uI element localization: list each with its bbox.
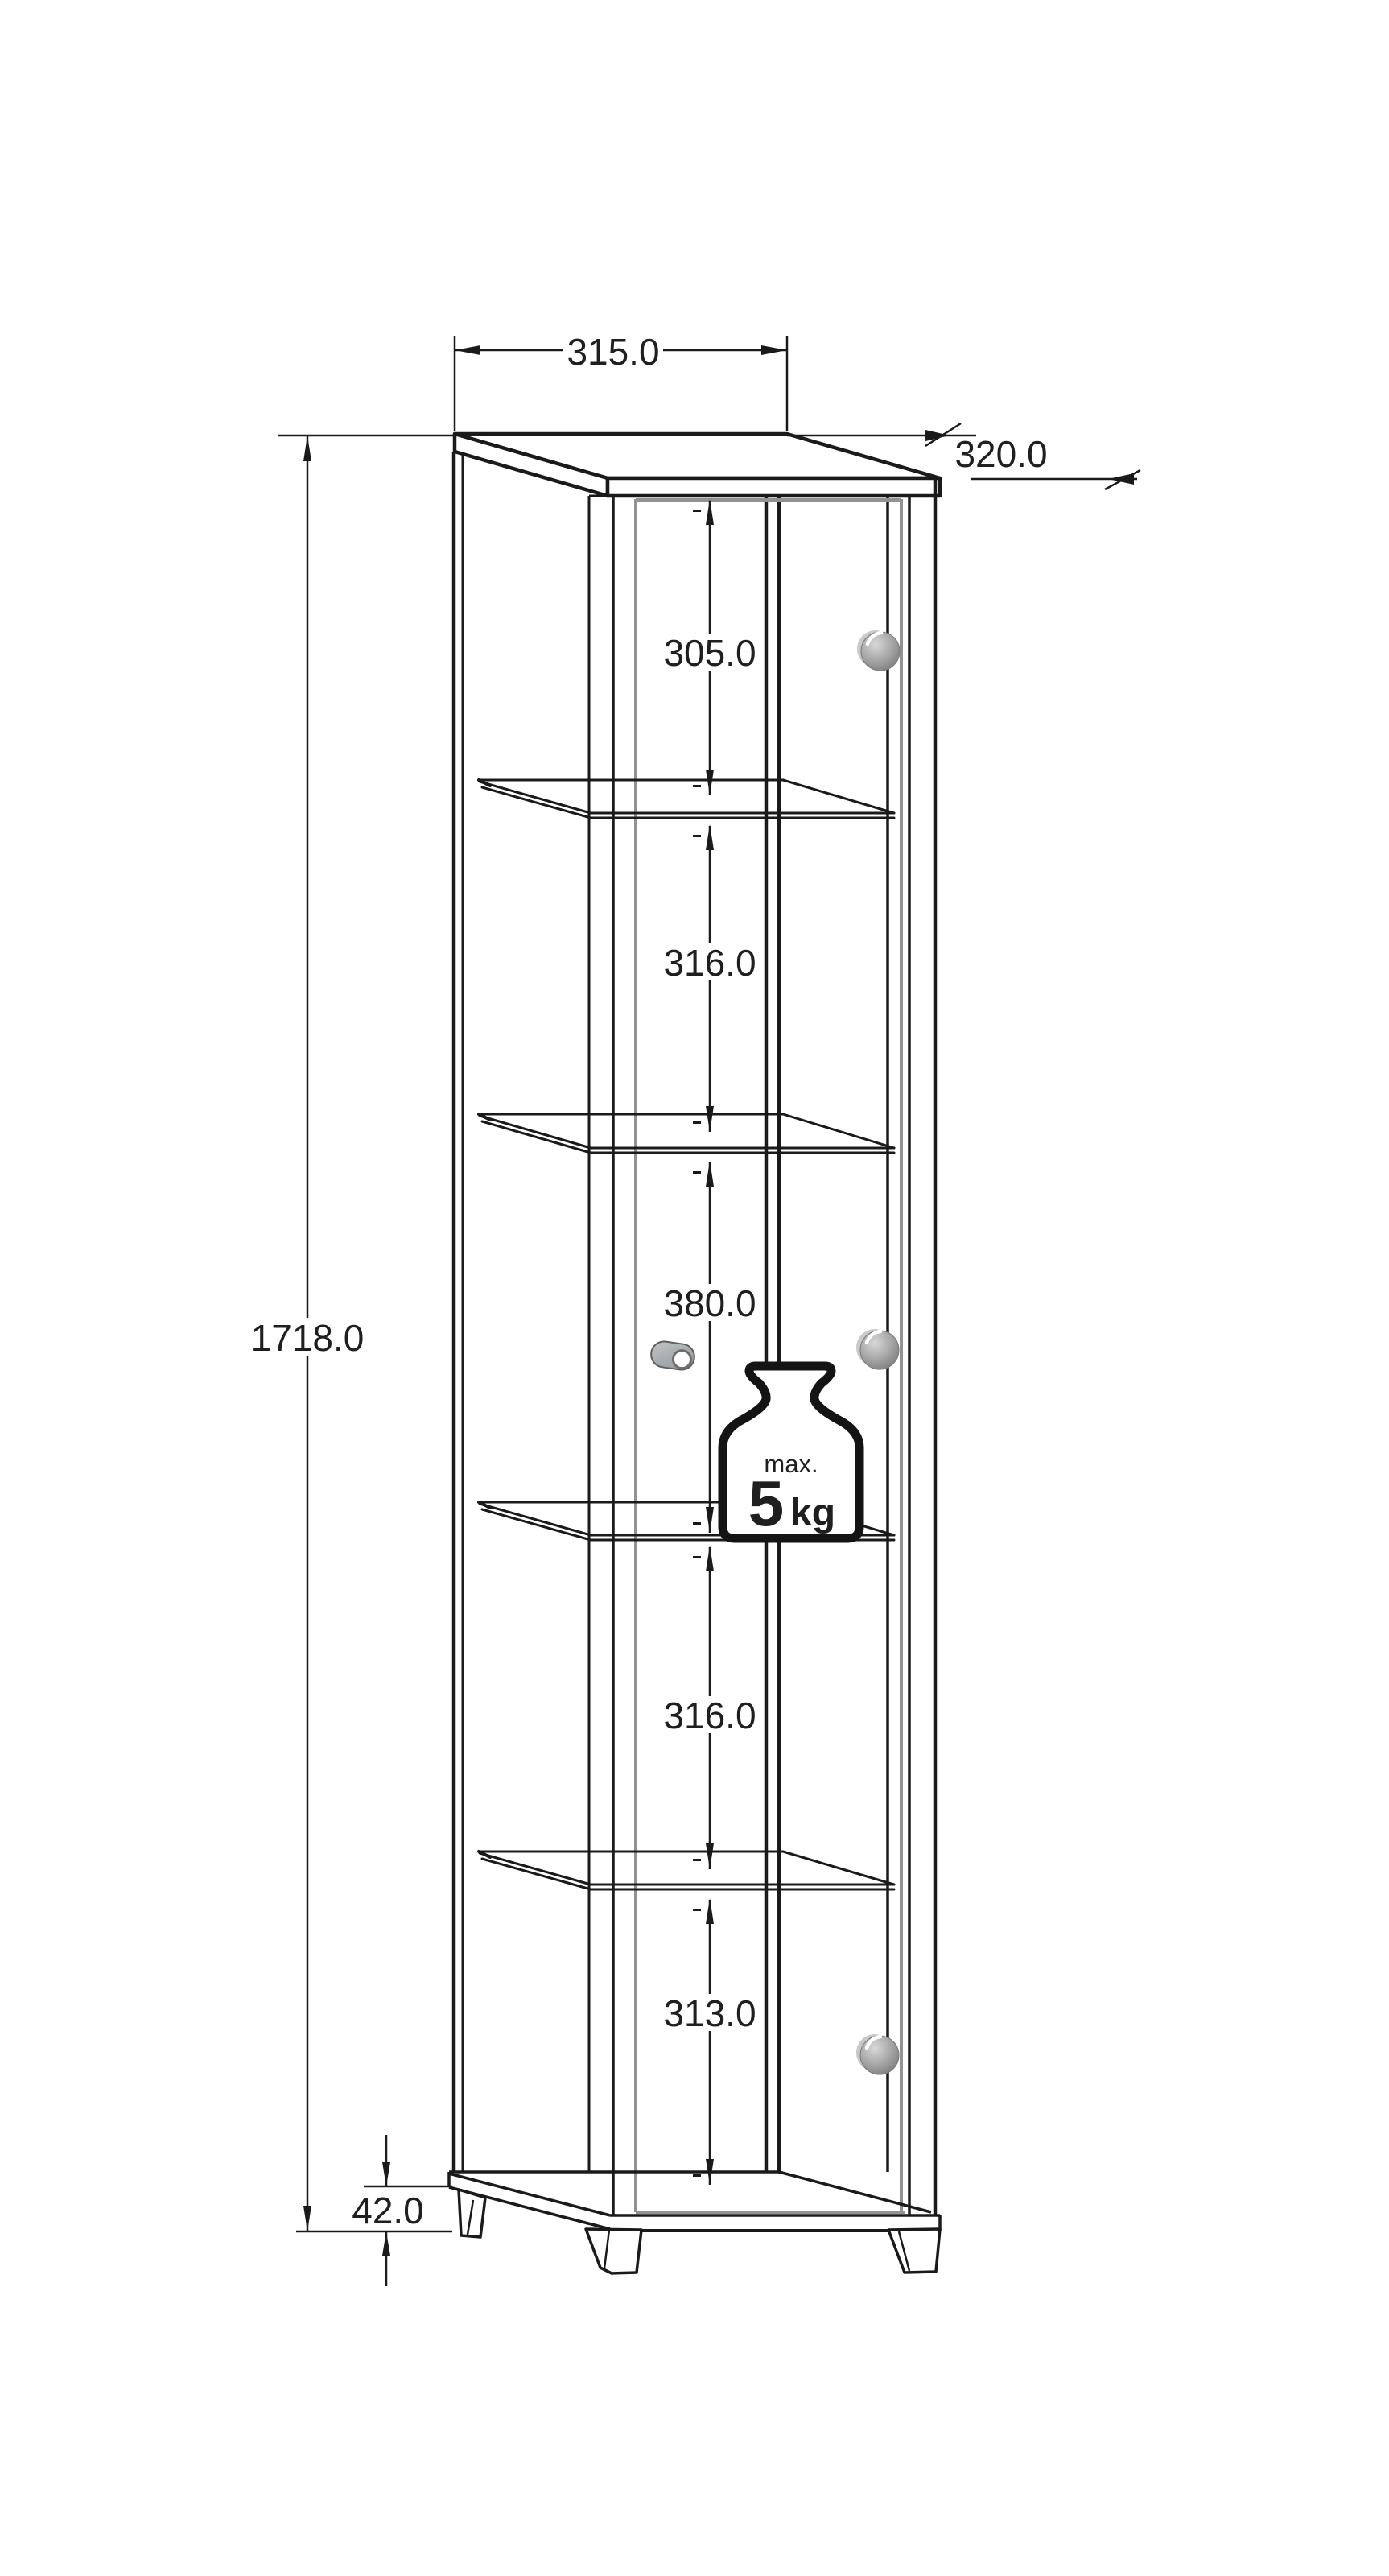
door-knob-middle bbox=[856, 1329, 899, 1369]
door-knobs bbox=[856, 630, 900, 2074]
dim-depth-label: 320.0 bbox=[954, 433, 1047, 475]
dim-shelf-gap-1-label: 305.0 bbox=[663, 632, 756, 674]
door-knob-bottom bbox=[856, 2034, 899, 2074]
dim-shelf-gap-3-label: 380.0 bbox=[663, 1282, 756, 1324]
magnetic-catch-icon bbox=[649, 1340, 696, 1371]
max-load-weight-icon: max. 5 kg bbox=[723, 1366, 859, 1539]
dim-shelf-gap-5-label: 313.0 bbox=[663, 1992, 756, 2034]
door-knob-top bbox=[857, 630, 900, 671]
plinth bbox=[449, 2172, 940, 2231]
cabinet-dimension-drawing: 305.0 316.0 380.0 316.0 313.0 bbox=[0, 0, 1389, 2576]
glass-shelf-4 bbox=[479, 1851, 894, 1889]
glass-shelf-2 bbox=[479, 1114, 894, 1153]
glass-shelf-1 bbox=[479, 780, 894, 818]
foot-front-left bbox=[586, 2229, 641, 2273]
foot-front-right bbox=[888, 2229, 940, 2273]
dim-shelf-gap-2-label: 316.0 bbox=[663, 942, 756, 984]
dim-top-width: 315.0 bbox=[455, 331, 787, 431]
max-load-unit: kg bbox=[790, 1492, 835, 1534]
top-panel-front-band bbox=[608, 478, 940, 496]
dim-total-height-label: 1718.0 bbox=[251, 1317, 365, 1359]
dim-shelf-gap-4-label: 316.0 bbox=[663, 1695, 756, 1736]
max-load-value: 5 bbox=[748, 1468, 785, 1539]
shelf-gap-dimensions: 305.0 316.0 380.0 316.0 313.0 bbox=[660, 499, 760, 2185]
dim-plinth-height: 42.0 bbox=[296, 2135, 452, 2286]
dimension-drawing-page: 305.0 316.0 380.0 316.0 313.0 bbox=[0, 0, 1389, 2576]
dim-top-width-label: 315.0 bbox=[567, 331, 659, 373]
dim-plinth-height-label: 42.0 bbox=[352, 2190, 424, 2231]
dim-total-height: 1718.0 bbox=[246, 436, 453, 2231]
